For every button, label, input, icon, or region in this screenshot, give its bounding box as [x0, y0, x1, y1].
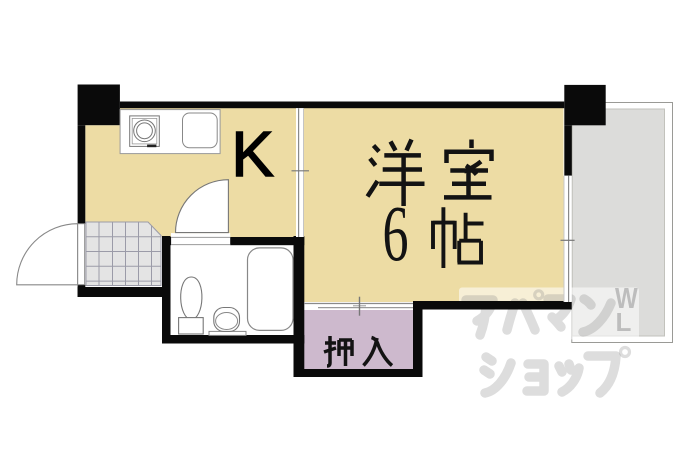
svg-text:K: K [231, 118, 274, 190]
svg-text:L: L [616, 307, 632, 337]
svg-text:6: 6 [383, 190, 409, 277]
